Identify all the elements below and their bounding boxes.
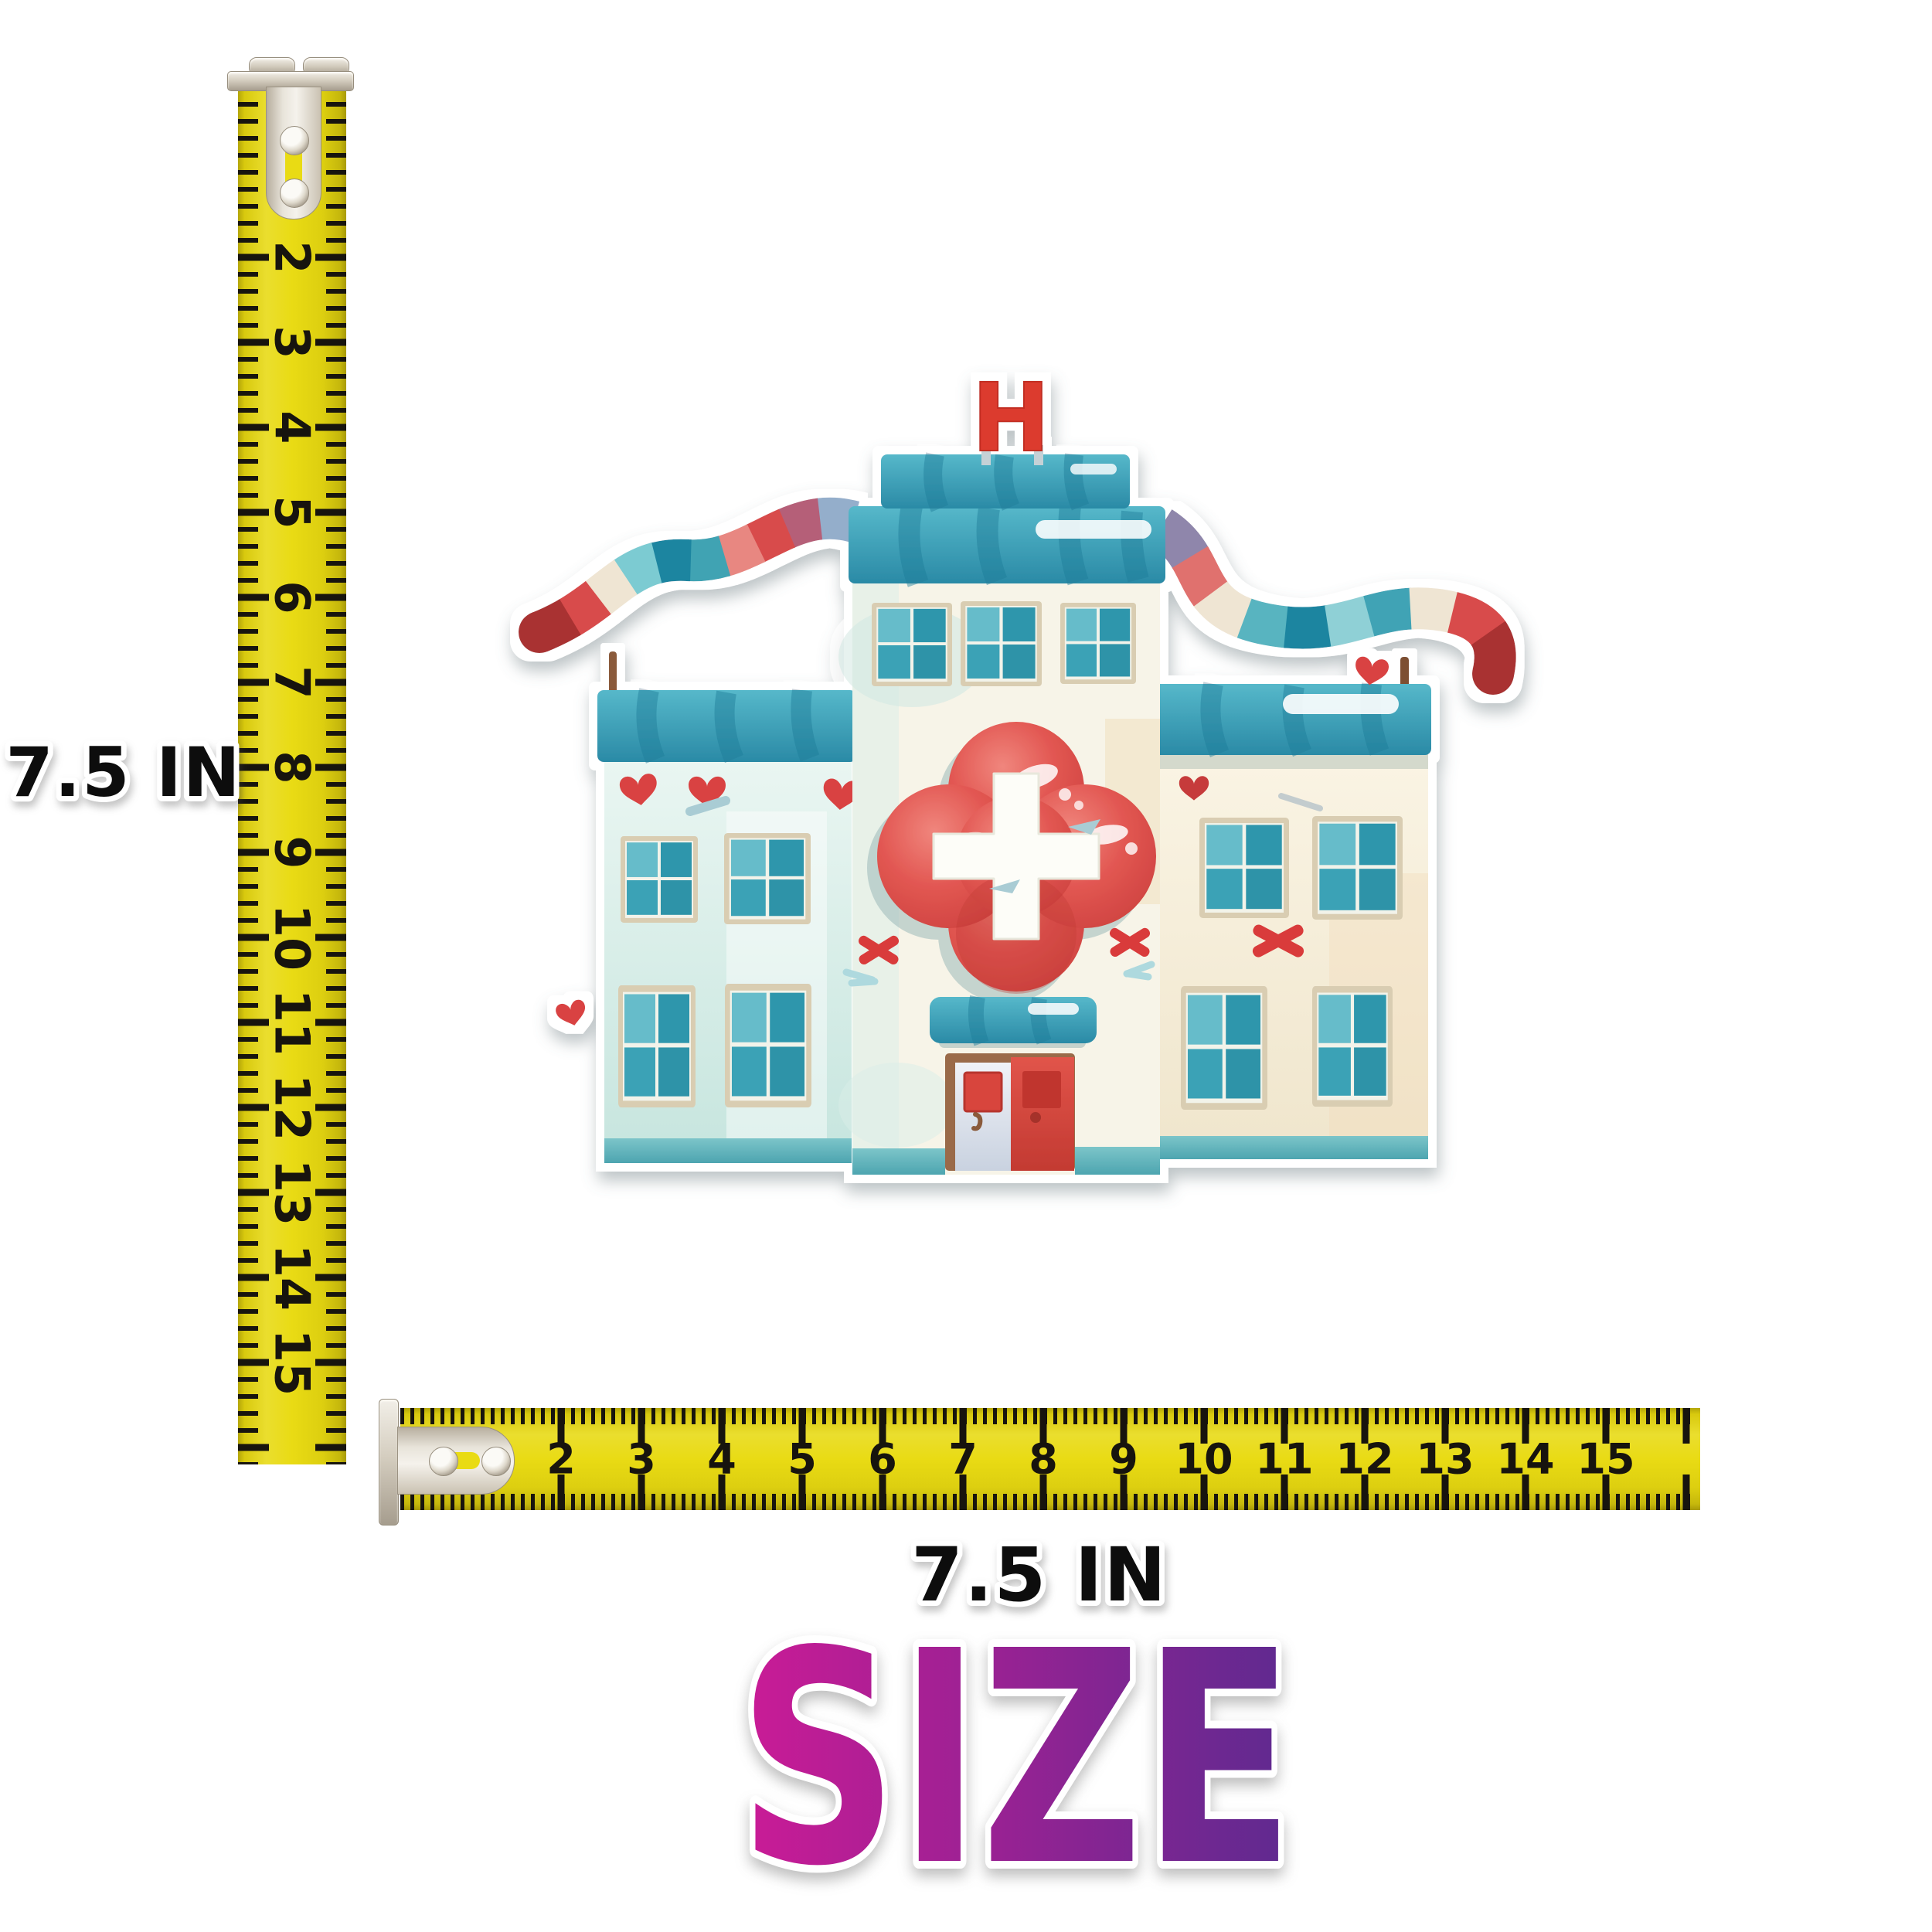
vertical-tape-measure: 23456789101112131415	[229, 68, 352, 1471]
banner-left-icon	[519, 519, 854, 653]
ruler-number: 10	[1175, 1435, 1233, 1484]
ruler-number: 4	[264, 410, 321, 444]
flag-pole-icon	[609, 651, 617, 694]
banner-right-icon	[1161, 527, 1514, 695]
horizontal-tape-measure: 23456789101112131415	[379, 1396, 1708, 1532]
ruler-number: 8	[264, 750, 321, 784]
window-icon	[1312, 986, 1393, 1107]
window-icon	[961, 601, 1042, 686]
rivet-hole-icon	[280, 179, 309, 208]
window-icon	[618, 985, 696, 1107]
central-tower: H	[838, 363, 1165, 1175]
tape-clip-tab-icon	[266, 87, 321, 219]
major-tick	[1683, 1408, 1690, 1510]
hospital-sticker: H	[495, 332, 1515, 1298]
ruler-number: 2	[264, 240, 321, 274]
ruler-number: 15	[1577, 1435, 1634, 1484]
ruler-number: 7	[264, 665, 321, 699]
ruler-number: 12	[1335, 1435, 1393, 1484]
ruler-number: 11	[1255, 1435, 1313, 1484]
window-icon	[724, 833, 811, 924]
ruler-number: 10	[264, 904, 321, 971]
ruler-number: 13	[264, 1159, 321, 1226]
entrance	[930, 997, 1097, 1171]
ruler-number: 6	[264, 580, 321, 614]
ruler-number: 15	[264, 1329, 321, 1396]
major-tick	[238, 1444, 346, 1451]
window-icon	[872, 603, 952, 686]
hospital-sign-letter: H	[971, 363, 1050, 473]
height-label-wrap: 7.5 IN	[12, 719, 236, 827]
ruler-number: 5	[787, 1435, 817, 1484]
window-icon	[1181, 986, 1267, 1110]
tape-clip-hook-icon	[379, 1399, 399, 1526]
ruler-number: 3	[627, 1435, 656, 1484]
left-wing	[554, 690, 861, 1163]
rivet-hole-icon	[280, 126, 309, 155]
height-label: 7.5 IN	[6, 733, 242, 812]
door-knob-icon	[1030, 1112, 1041, 1123]
heart-icon	[1353, 655, 1390, 687]
tape-clip-tab-icon	[397, 1427, 515, 1495]
window-icon	[725, 984, 811, 1107]
ruler-number: 5	[264, 495, 321, 529]
ruler-number: 12	[264, 1074, 321, 1141]
minor-ticks-bottom	[400, 1494, 1696, 1510]
ruler-number: 13	[1416, 1435, 1474, 1484]
size-title: SIZE	[738, 1588, 1294, 1930]
ruler-number: 14	[1496, 1435, 1554, 1484]
ruler-number: 2	[546, 1435, 576, 1484]
ruler-number: 3	[264, 325, 321, 359]
ruler-number: 9	[1109, 1435, 1138, 1484]
minor-ticks-right	[326, 85, 346, 1464]
tower-roof-lower	[849, 506, 1165, 583]
size-guide-canvas: { "page": {"background_color": "#ffffff"…	[0, 0, 1932, 1932]
minor-ticks-top	[400, 1408, 1696, 1424]
window-icon	[1199, 818, 1289, 918]
heart-icon	[554, 998, 589, 1029]
window-icon	[1312, 816, 1403, 920]
rivet-hole-icon	[429, 1447, 458, 1476]
ruler-number: 4	[707, 1435, 736, 1484]
ruler-number: 11	[264, 989, 321, 1056]
rivet-hole-icon	[481, 1447, 511, 1476]
window-icon	[621, 836, 698, 923]
ruler-number: 7	[948, 1435, 978, 1484]
size-title-wrap: SIZE	[707, 1623, 1325, 1928]
ruler-number: 6	[868, 1435, 897, 1484]
ruler-number: 14	[264, 1244, 321, 1311]
window-icon	[1060, 603, 1136, 684]
ruler-number: 9	[264, 835, 321, 869]
ruler-number: 8	[1029, 1435, 1058, 1484]
